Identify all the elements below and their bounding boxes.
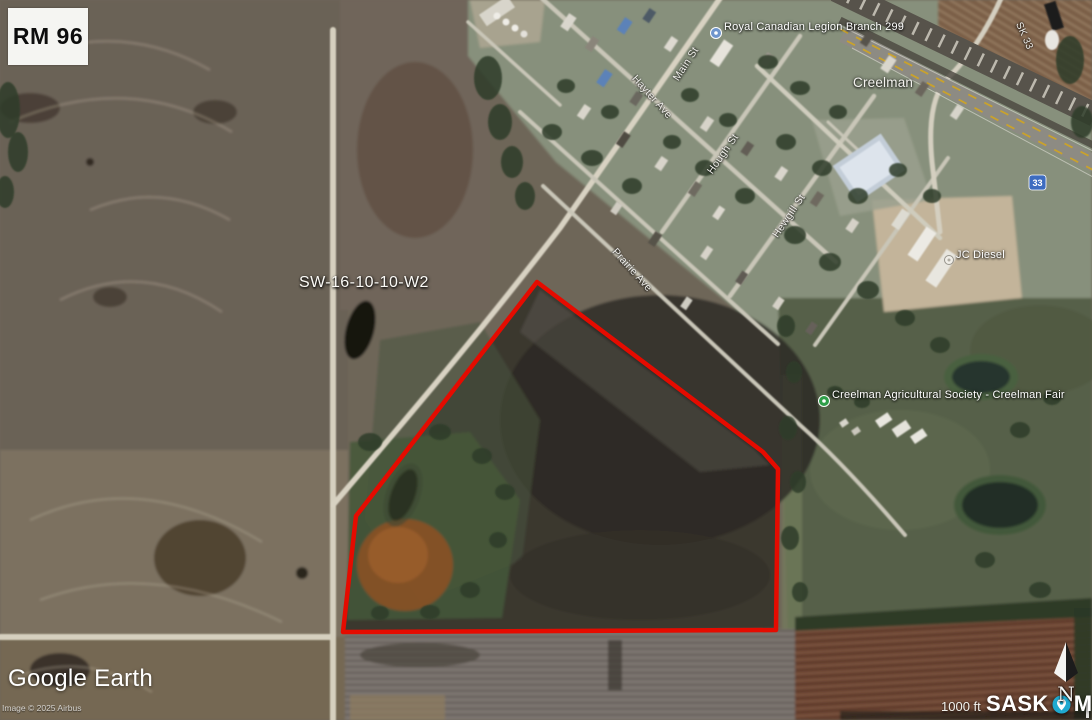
- satellite-map-view[interactable]: 33 RM 96 SW-16-10-10-W2 Royal Canadian L…: [0, 0, 1092, 720]
- legion-poi-dot: [714, 31, 718, 35]
- satellite-imagery: 33: [0, 0, 1092, 720]
- scale-bar-label: 1000 ft: [941, 699, 981, 714]
- fair-poi-label: Creelman Agricultural Society - Creelman…: [832, 389, 1065, 401]
- diesel-poi-label: JC Diesel: [956, 249, 1005, 261]
- diesel-poi-dot: [948, 259, 951, 262]
- legal-land-description-label: SW-16-10-10-W2: [299, 274, 429, 292]
- google-earth-logo: Google Earth: [8, 665, 153, 693]
- fair-poi-dot: [822, 399, 826, 403]
- highway-33-shield: 33: [1029, 175, 1046, 190]
- town-label: Creelman: [853, 75, 913, 90]
- svg-text:33: 33: [1032, 178, 1042, 188]
- north-arrow-icon: [1044, 640, 1088, 684]
- imagery-credit: Image © 2025 Airbus: [2, 703, 82, 713]
- compass-north-label: N: [1044, 682, 1088, 706]
- north-compass: N: [1044, 640, 1088, 706]
- terrain-layer: [0, 0, 1092, 720]
- sask-wordmark: SASK: [986, 691, 1049, 717]
- rm-number-badge: RM 96: [8, 8, 88, 65]
- legion-poi-label: Royal Canadian Legion Branch 299: [724, 21, 904, 33]
